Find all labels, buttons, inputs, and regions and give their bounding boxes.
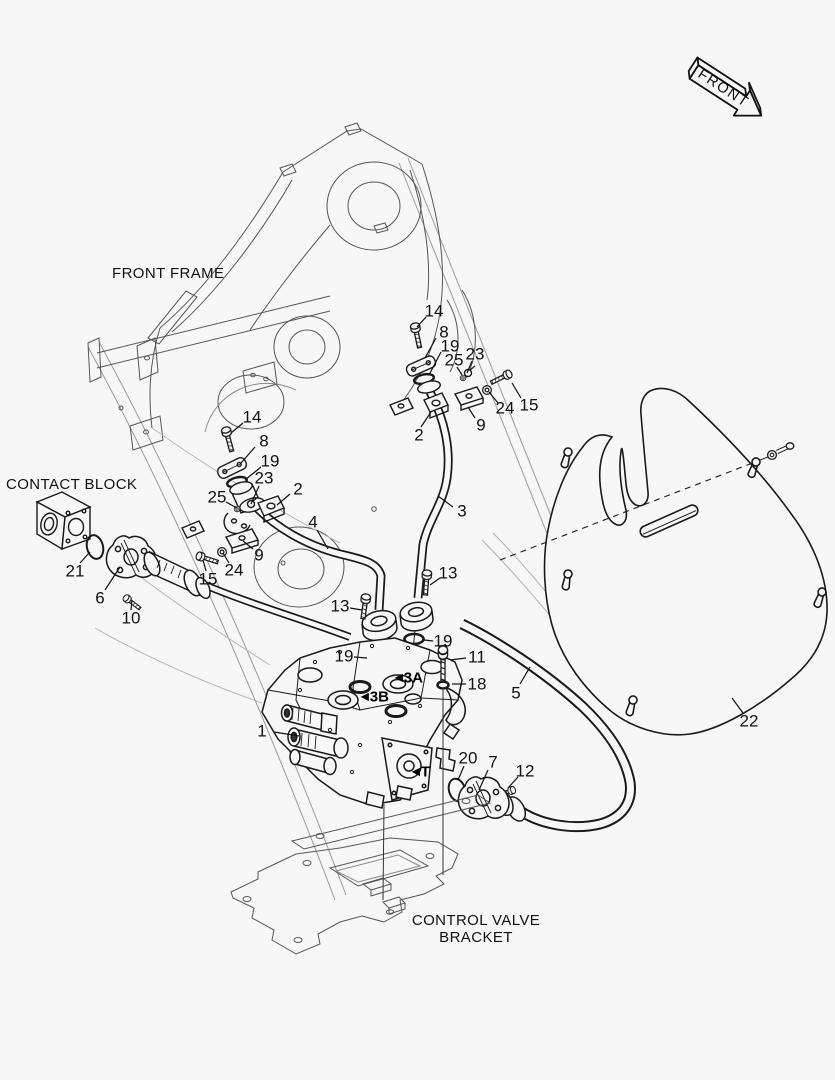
bolt-14-right	[410, 322, 424, 348]
leader-line-19	[245, 467, 261, 480]
diagram-canvas	[0, 0, 835, 1080]
leader-line-13	[350, 608, 362, 610]
contact-block-art	[37, 492, 90, 549]
leader-line-5	[520, 667, 530, 684]
leader-line-13	[430, 578, 440, 585]
pipe-4	[254, 505, 381, 610]
pin-25-right	[460, 375, 466, 381]
cover-plate-22	[545, 388, 828, 734]
leader-line-9	[468, 407, 475, 418]
bolt-15-left	[195, 551, 219, 566]
elbow-2-right	[417, 379, 448, 418]
leader-line-25	[226, 502, 237, 508]
tube-6	[200, 583, 350, 637]
leader-line-19	[424, 640, 433, 641]
tab-right	[390, 398, 413, 415]
elbow-2-left	[228, 480, 284, 522]
pipe-3	[418, 392, 448, 598]
bracket-9-right	[455, 387, 483, 410]
tab-left	[182, 521, 204, 538]
leader-line-21	[80, 552, 90, 563]
cover-plate-screw	[768, 443, 794, 460]
control-valve-art	[262, 638, 465, 808]
leader-line-24	[489, 392, 498, 403]
front-arrow	[682, 52, 773, 128]
parts-diagram-page: FRONT FRAME CONTACT BLOCK CONTROL VALVE …	[0, 0, 835, 1080]
bracket-art	[231, 795, 490, 954]
fitting-cluster-left	[182, 426, 284, 566]
leader-line-8	[241, 447, 255, 463]
washer-24-left	[218, 548, 227, 557]
leader-line-20	[458, 766, 464, 780]
leader-line-14	[417, 317, 426, 327]
leader-line-11	[450, 658, 466, 660]
leader-line-15	[512, 383, 521, 398]
leader-line-15	[203, 560, 206, 571]
leader-line-2	[421, 412, 431, 427]
leader-line-25	[457, 367, 462, 375]
leader-line-8	[425, 338, 436, 358]
